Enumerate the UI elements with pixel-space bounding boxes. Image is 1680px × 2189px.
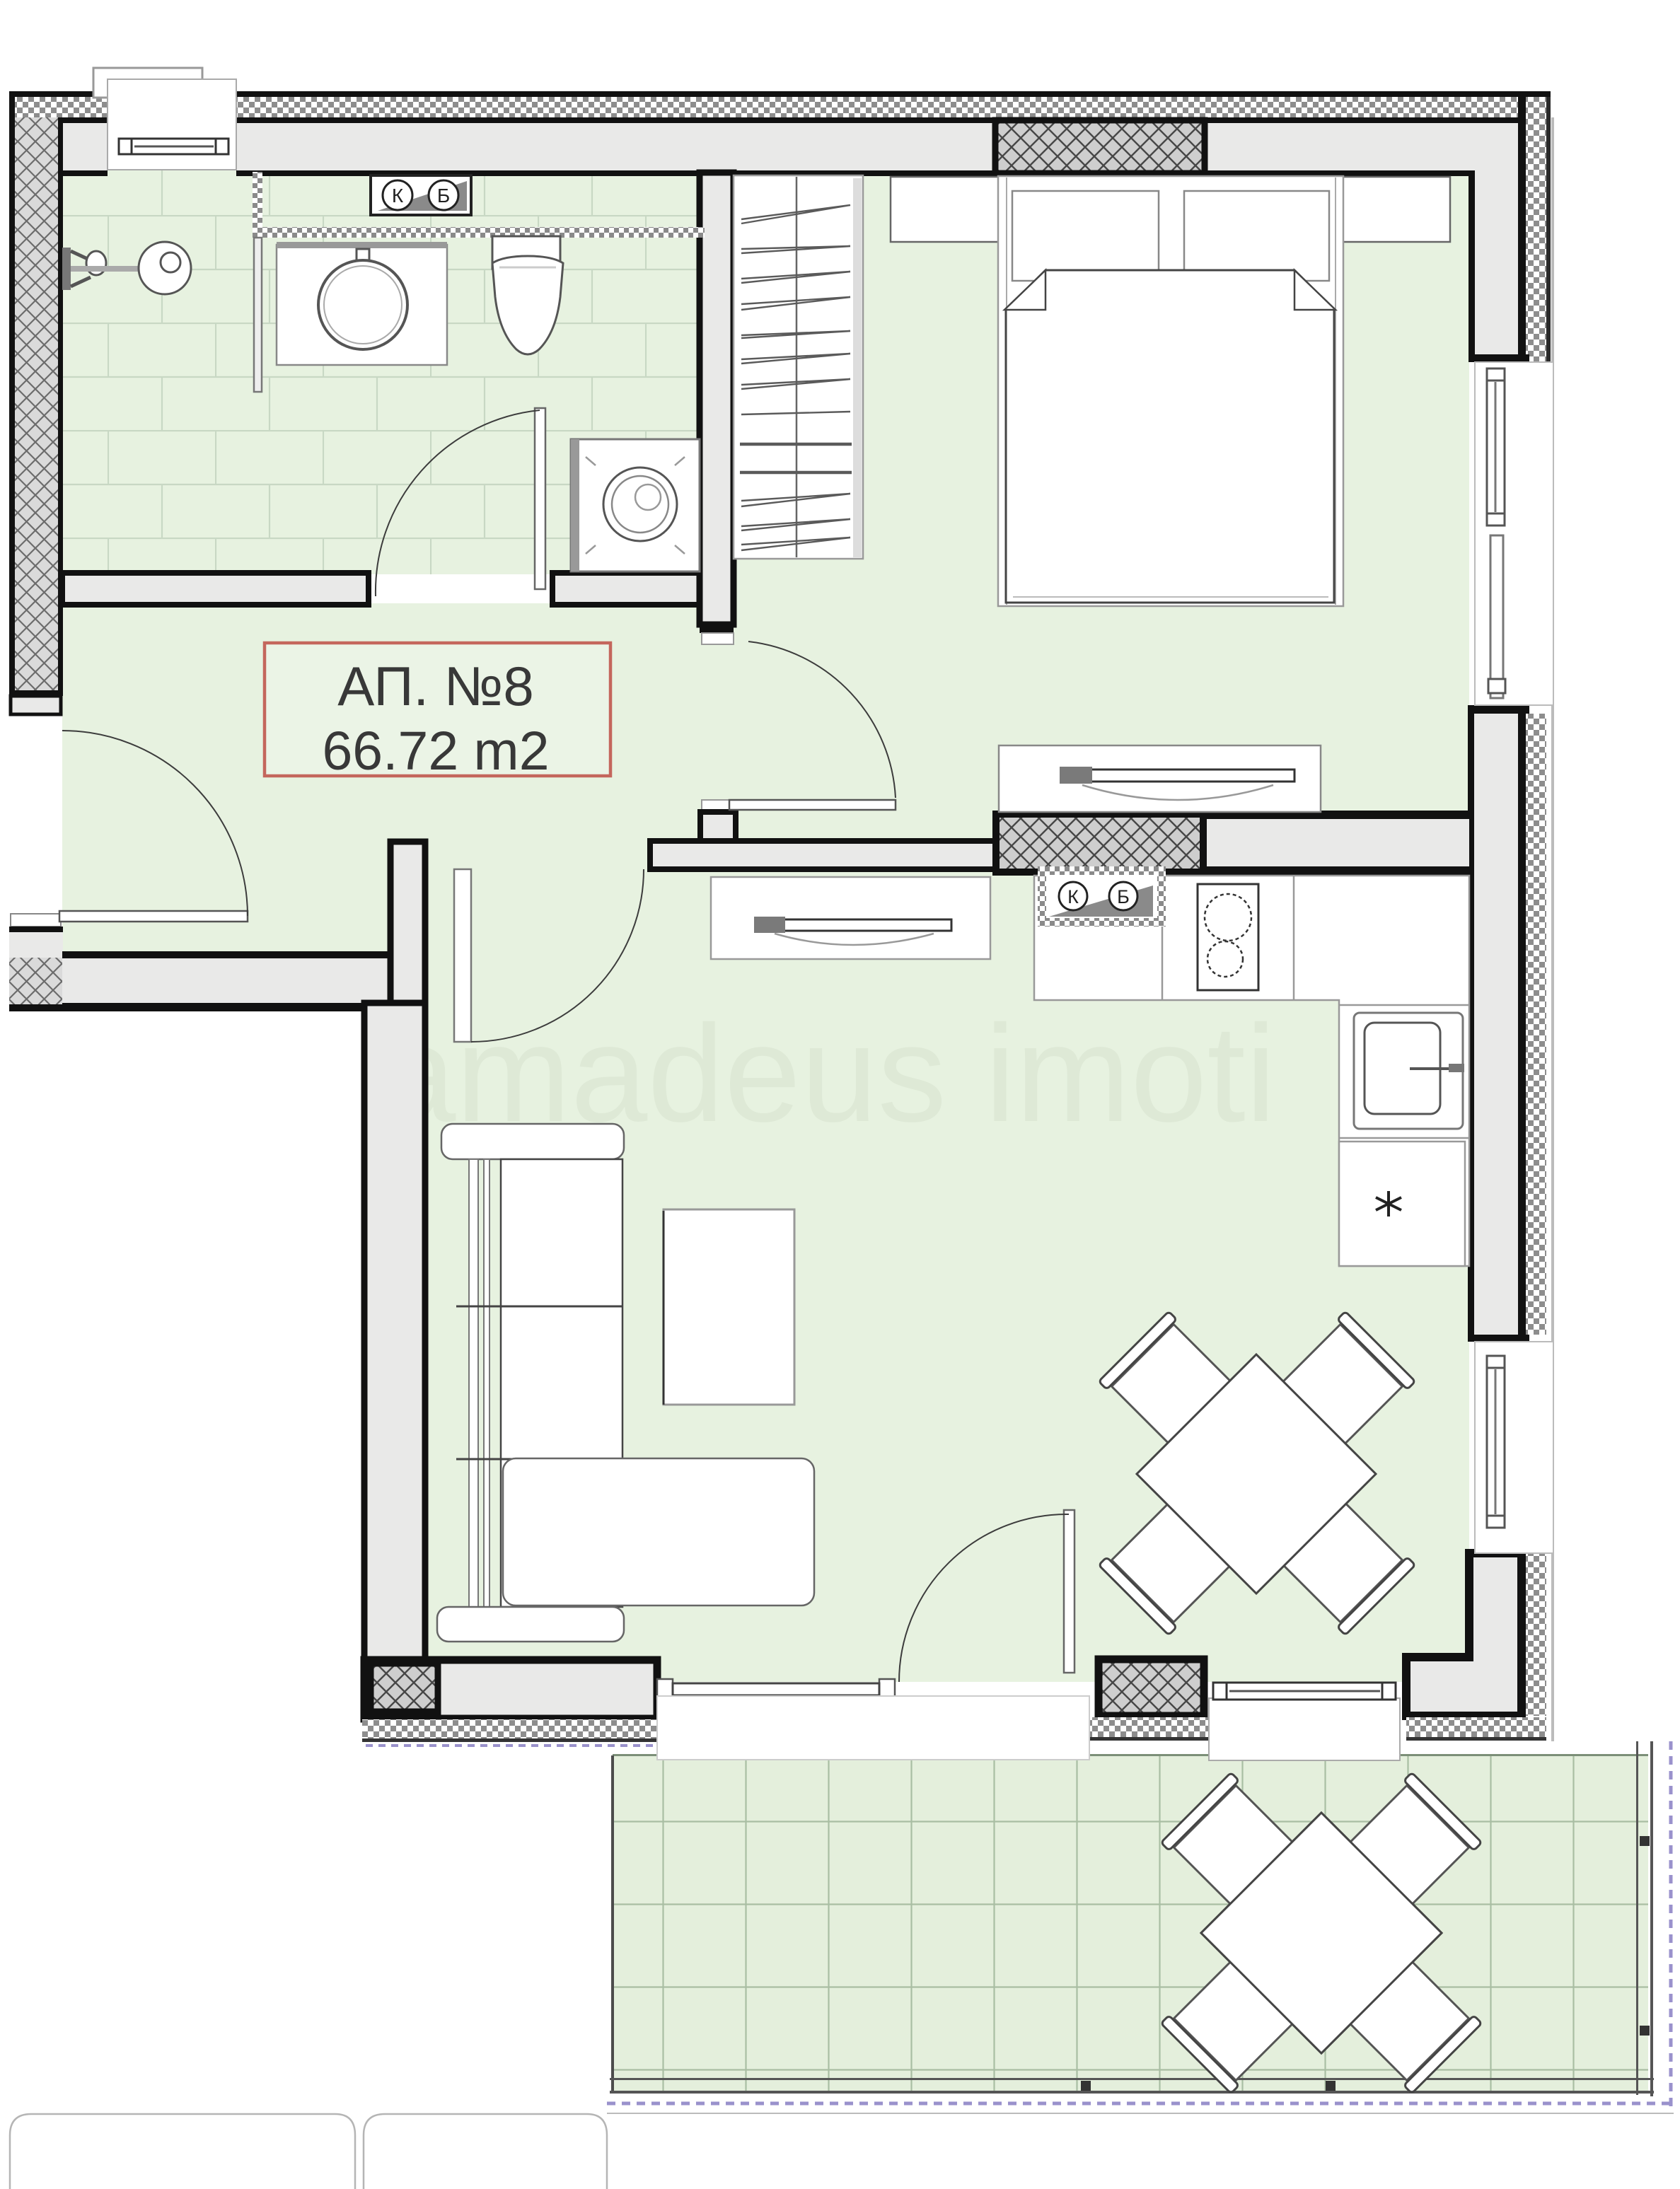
svg-text:Б: Б (1117, 886, 1130, 907)
svg-text:Б: Б (437, 185, 450, 207)
svg-text:АП. №8: АП. №8 (337, 655, 534, 717)
svg-text:К: К (392, 185, 404, 207)
svg-text:66.72 m2: 66.72 m2 (322, 721, 549, 782)
svg-text:К: К (1067, 886, 1079, 907)
